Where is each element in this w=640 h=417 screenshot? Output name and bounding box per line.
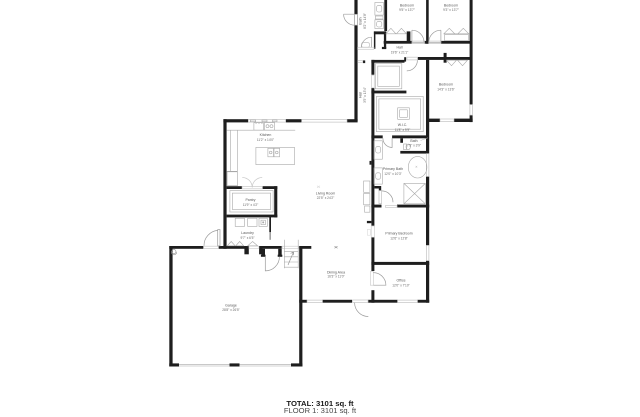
svg-text:Bedroom: Bedroom xyxy=(439,83,453,87)
svg-text:Bath: Bath xyxy=(410,139,417,143)
svg-text:Laundry: Laundry xyxy=(241,231,254,235)
svg-text:11'9" x 4'2": 11'9" x 4'2" xyxy=(243,203,258,207)
svg-text:11'2" x 14'0": 11'2" x 14'0" xyxy=(257,138,274,142)
svg-text:3'5" x 13'4": 3'5" x 13'4" xyxy=(363,87,367,103)
svg-text:28'8" x 26'5": 28'8" x 26'5" xyxy=(222,308,239,312)
svg-text:Hall: Hall xyxy=(396,46,402,50)
svg-text:8'2" x 14'8": 8'2" x 14'8" xyxy=(363,13,367,29)
svg-text:Primary Bedroom: Primary Bedroom xyxy=(385,232,412,236)
svg-text:12'0" x 10'3": 12'0" x 10'3" xyxy=(384,172,401,176)
svg-text:9'7" x 6'5": 9'7" x 6'5" xyxy=(241,236,255,240)
svg-text:16'3" x 11'0": 16'3" x 11'0" xyxy=(327,275,344,279)
svg-text:Office: Office xyxy=(396,279,405,283)
svg-text:12'0" x 7'10": 12'0" x 7'10" xyxy=(392,284,409,288)
svg-text:7'5" x 3'9": 7'5" x 3'9" xyxy=(407,144,421,148)
svg-text:Pantry: Pantry xyxy=(245,198,255,202)
svg-text:19'6" x 21'1": 19'6" x 21'1" xyxy=(391,51,408,55)
svg-text:14'3" x 13'6": 14'3" x 13'6" xyxy=(437,88,454,92)
svg-text:Kitchen: Kitchen xyxy=(260,133,272,137)
svg-text:12'6" x 12'8": 12'6" x 12'8" xyxy=(390,237,407,241)
svg-text:22'5" x 24'2": 22'5" x 24'2" xyxy=(317,196,334,200)
svg-text:W.I.C.: W.I.C. xyxy=(398,123,408,127)
svg-text:9'5" x 13'7": 9'5" x 13'7" xyxy=(399,8,415,12)
svg-text:11'8" x 9'9": 11'8" x 9'9" xyxy=(395,128,410,132)
svg-text:Primary Bath: Primary Bath xyxy=(383,167,403,171)
svg-text:9'3" x 13'7": 9'3" x 13'7" xyxy=(443,8,459,12)
